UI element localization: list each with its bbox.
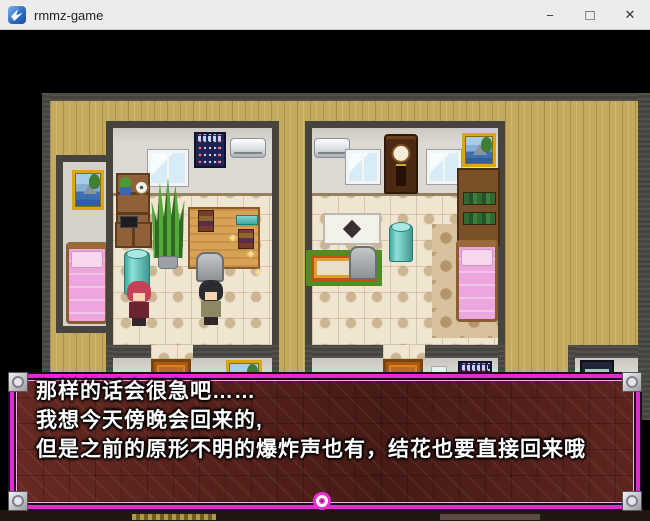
tatami-strip [132, 514, 216, 520]
wall-top [575, 345, 638, 358]
app-window: rmmz-game − □ ✕ [0, 0, 650, 521]
message-text-line: 我想今天傍晚会回来的, [36, 406, 586, 435]
floor-strip [440, 514, 540, 520]
downstairs-strip [0, 510, 650, 521]
pink-bed-left [66, 242, 108, 324]
close-button[interactable]: ✕ [610, 0, 650, 30]
face [133, 293, 145, 301]
sparkle-icon: ✦ [254, 266, 263, 279]
window [346, 150, 380, 184]
book-row [463, 212, 496, 225]
wall-calendar [194, 132, 226, 168]
corner-ornament-icon [8, 491, 28, 511]
potted-plant-small [120, 177, 131, 195]
air-conditioner [314, 138, 350, 158]
doorway-tiles [383, 345, 425, 359]
minimize-button[interactable]: − [530, 0, 570, 30]
table [323, 213, 381, 245]
message-text: 那样的话会很急吧…… 我想今天傍晚会回来的, 但是之前的原形不明的爆炸声也有，结… [36, 377, 586, 464]
corner-ornament-icon [8, 372, 28, 392]
air-conditioner [230, 138, 266, 158]
character-black-hair [197, 280, 225, 326]
message-text-line: 但是之前的原形不明的爆炸声也有，结花也要直接回来哦 [36, 435, 586, 464]
clock-icon [134, 180, 149, 195]
title-bar[interactable]: rmmz-game − □ ✕ [0, 0, 650, 30]
doorway-tiles [151, 345, 193, 359]
book-row [463, 192, 496, 205]
legs [204, 317, 218, 325]
grandfather-clock [384, 134, 418, 194]
maximize-button[interactable]: □ [570, 0, 610, 30]
book-stack [198, 210, 214, 232]
message-window[interactable]: 那样的话会很急吧…… 我想今天傍晚会回来的, 但是之前的原形不明的爆炸声也有，结… [8, 372, 642, 511]
corner-ornament-icon [622, 372, 642, 392]
window-title: rmmz-game [34, 8, 103, 23]
message-text-line: 那样的话会很急吧…… [36, 377, 586, 406]
water-drum [389, 224, 413, 262]
outer-wall-top [42, 93, 650, 101]
sparkle-icon: ✦ [228, 232, 237, 245]
painting [462, 133, 496, 167]
painting [72, 170, 104, 210]
character-red-hair [125, 281, 153, 327]
book-stack [238, 229, 254, 249]
legs [132, 318, 146, 326]
outfit-khaki [201, 301, 221, 317]
pause-indicator-icon [316, 495, 328, 507]
face [205, 292, 217, 300]
window [427, 150, 461, 184]
plant-pot [158, 256, 178, 269]
pencil-case [236, 215, 258, 225]
bookcase [457, 168, 500, 246]
chair [349, 246, 377, 280]
sparkle-icon: ✦ [246, 248, 255, 261]
outer-wall-right [638, 93, 650, 420]
outer-wall-left [42, 93, 50, 420]
chair [196, 252, 224, 282]
corner-ornament-icon [622, 491, 642, 511]
rmmz-app-icon [8, 6, 26, 24]
pink-bed-right [456, 240, 498, 322]
outfit-dark-red [129, 302, 149, 318]
tv-screen [120, 216, 138, 228]
